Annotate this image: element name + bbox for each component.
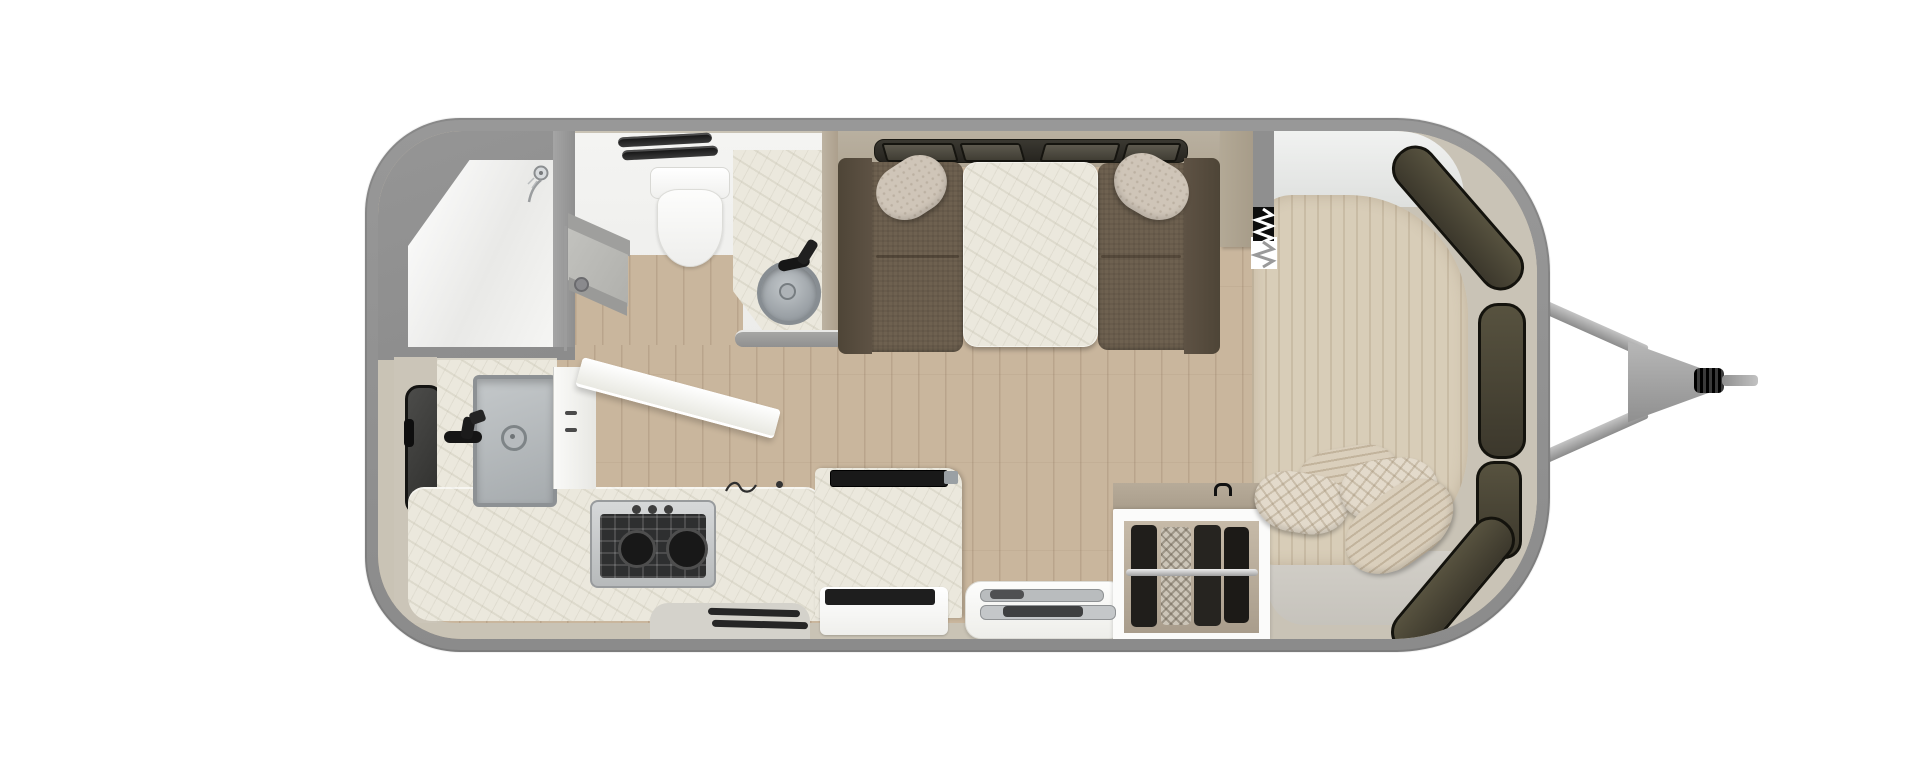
cabinet-handle [565,428,577,432]
window-pane [1039,143,1120,162]
cabinet-handle [565,411,577,415]
window-latch-icon [404,419,414,447]
peninsula-slab-trim [944,471,958,484]
hanging-garment [1161,527,1191,625]
floorplan-canvas [0,0,1920,760]
cooktop [590,500,716,588]
wardrobe-hook-icon [1214,483,1232,496]
bath-door-knob [574,277,589,292]
front-window-segment [1478,303,1526,459]
hanging-garment [1131,525,1157,627]
table-leg-bracket [1003,606,1083,617]
counter-knob [776,481,783,488]
table-leg-bracket [990,590,1024,599]
cooktop-knob [648,505,657,514]
bath-wall [735,330,838,347]
peninsula-top-slab [830,470,948,487]
bath-wall [822,131,838,345]
dinette-backrest-right [1184,158,1220,354]
burner-icon [618,530,656,568]
hitch-jack-rod [1722,375,1758,386]
bath-sink-drain [779,283,796,300]
toilet-bowl [657,189,723,267]
hitch-coupler [1694,368,1724,393]
window-pane [959,143,1025,162]
galley-sink-drain [501,425,527,451]
counter-cable-icon [724,479,758,495]
shower-door-track [564,226,567,351]
wardrobe-interior [1124,521,1259,633]
partition-edge [1253,131,1274,213]
bedroom-partition [1220,131,1253,247]
wardrobe-top [1113,483,1270,509]
dinette-backrest-left [838,158,872,354]
cooktop-knob [632,505,641,514]
shower-head-icon [521,164,551,208]
accordion-screen-icon [1251,207,1277,269]
trailer-shell [365,118,1550,652]
cooktop-knob [664,505,673,514]
burner-icon [666,528,708,570]
flip-up-counter [575,357,781,439]
dinette-table [963,162,1098,347]
fridge-handle [825,589,935,605]
trailer-interior [378,131,1537,639]
clothes-rod [1126,569,1258,576]
